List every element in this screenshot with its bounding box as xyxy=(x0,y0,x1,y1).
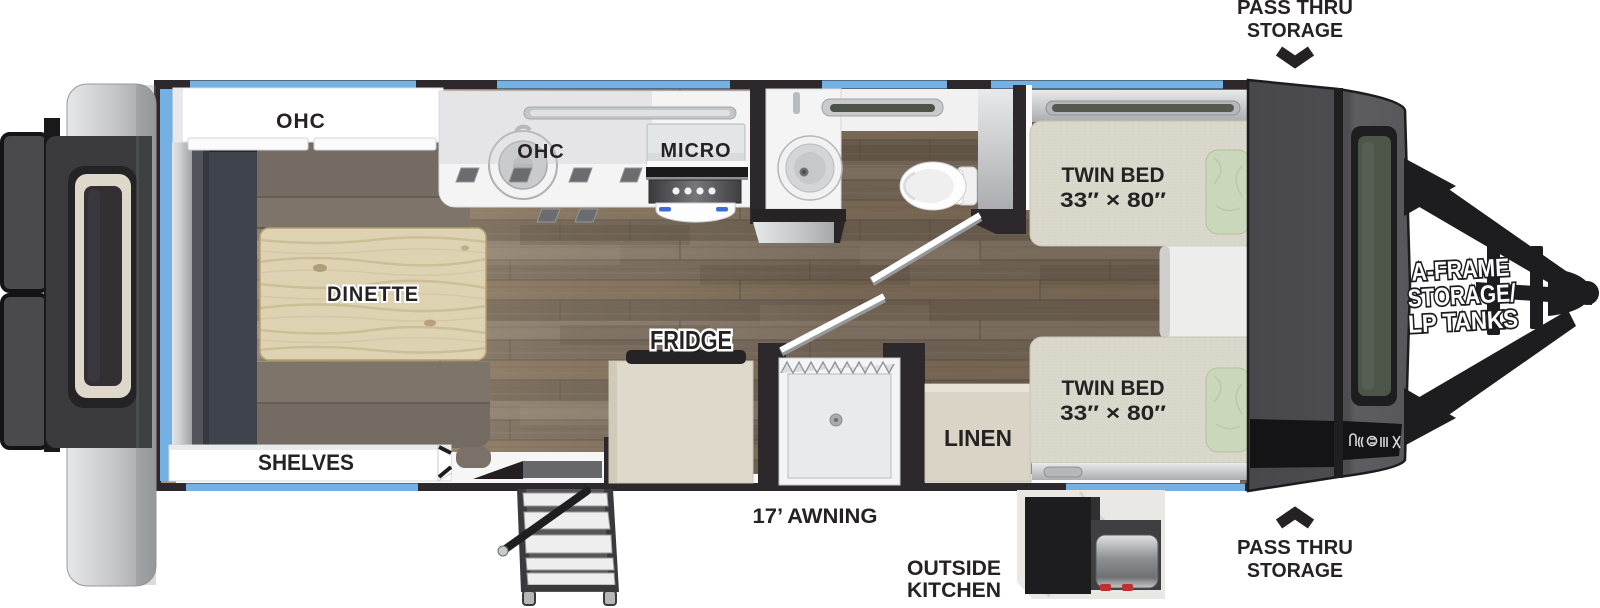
svg-text:STORAGE: STORAGE xyxy=(1247,20,1343,42)
svg-text:FRIDGE: FRIDGE xyxy=(650,325,732,355)
svg-text:OHC: OHC xyxy=(517,141,564,163)
svg-text:TWIN BED: TWIN BED xyxy=(1062,377,1165,400)
svg-text:PASS THRU: PASS THRU xyxy=(1237,537,1353,559)
svg-text:SHELVES: SHELVES xyxy=(258,450,354,475)
svg-text:STORAGE: STORAGE xyxy=(1247,560,1343,582)
svg-text:LINEN: LINEN xyxy=(944,425,1012,451)
svg-text:17’ AWNING: 17’ AWNING xyxy=(753,505,878,528)
svg-text:OUTSIDE: OUTSIDE xyxy=(907,557,1001,580)
svg-text:OHC: OHC xyxy=(276,110,326,133)
svg-text:33″ × 80″: 33″ × 80″ xyxy=(1060,189,1166,212)
svg-text:PASS THRU: PASS THRU xyxy=(1237,0,1353,19)
svg-text:DINETTE: DINETTE xyxy=(327,283,419,306)
svg-text:TWIN BED: TWIN BED xyxy=(1062,164,1165,187)
svg-text:33″ × 80″: 33″ × 80″ xyxy=(1060,402,1166,425)
svg-text:MICRO: MICRO xyxy=(661,140,732,162)
svg-text:LP TANKS: LP TANKS xyxy=(1407,305,1518,339)
svg-text:KITCHEN: KITCHEN xyxy=(907,579,1001,602)
